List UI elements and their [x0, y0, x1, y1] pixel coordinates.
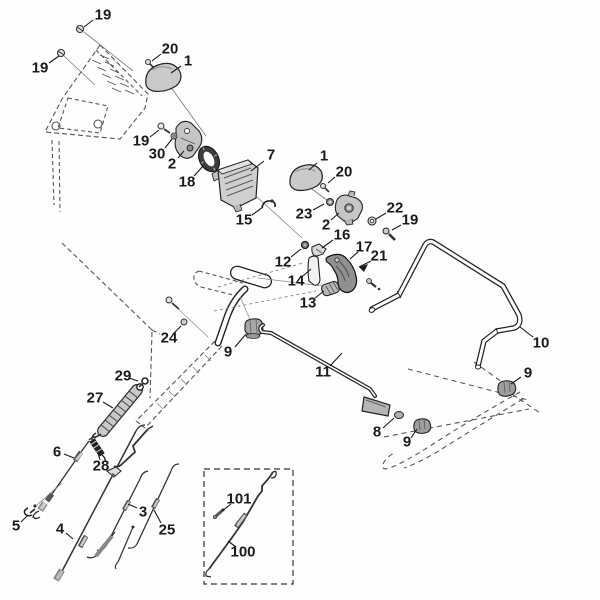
part-label-13: 13: [300, 295, 317, 312]
leader-line-19: [84, 20, 93, 27]
leader-line-27: [103, 402, 113, 408]
parts-diagram: 1920119193021871512023222191612172114131…: [0, 0, 600, 600]
part-label-1: 1: [184, 53, 192, 70]
phantom-lower-handle: [383, 362, 540, 469]
leader-line-12: [291, 249, 301, 257]
part-label-9: 9: [403, 434, 411, 451]
part-label-29: 29: [115, 368, 132, 385]
part-label-9: 9: [224, 344, 232, 361]
part-label-5: 5: [12, 518, 20, 535]
part-label-11: 11: [315, 364, 331, 381]
bushing-8: [395, 412, 404, 419]
leader-line-3: [128, 504, 137, 508]
leader-line-23: [313, 204, 324, 210]
screw-20-right: [321, 184, 330, 193]
leader-line-16: [322, 240, 333, 248]
part-label-20: 20: [162, 41, 179, 58]
part-label-3: 3: [139, 504, 147, 521]
part-label-15: 15: [236, 212, 253, 229]
part-label-9: 9: [524, 365, 532, 382]
cable-extra-right: [115, 526, 134, 570]
part-label-4: 4: [56, 521, 65, 538]
clevis-16: [312, 244, 326, 256]
part-label-8: 8: [373, 424, 381, 441]
part-label-28: 28: [93, 458, 110, 475]
part-label-23: 23: [296, 206, 313, 223]
nut-30: [171, 133, 177, 139]
part-label-19: 19: [402, 212, 419, 229]
part-label-10: 10: [533, 335, 550, 352]
part-labels: 1920119193021871512023222191612172114131…: [12, 7, 550, 561]
leader-line-11: [330, 353, 342, 366]
part-label-18: 18: [179, 174, 196, 191]
knob-13: [321, 281, 341, 297]
clip-15: [262, 199, 275, 207]
leader-line-9: [235, 334, 246, 347]
bracket-2-left: [175, 121, 202, 158]
screw-19-mid: [158, 123, 170, 133]
cap-9-bottom: [414, 419, 431, 434]
leader-line-20: [328, 177, 335, 183]
washer-22: [368, 217, 376, 225]
cable-6: [33, 437, 96, 518]
part-label-19: 19: [32, 60, 49, 77]
part-label-101: 101: [226, 491, 251, 508]
diagram-canvas: 1920119193021871512023222191612172114131…: [0, 0, 600, 600]
rod-100: [206, 471, 276, 577]
housing-7: [212, 160, 302, 238]
leader-line-4: [66, 533, 73, 539]
leader-line-22: [376, 213, 386, 219]
part-label-25: 25: [159, 522, 176, 539]
part-label-16: 16: [334, 227, 351, 244]
part-label-2: 2: [168, 156, 176, 173]
part-label-20: 20: [336, 164, 353, 181]
leader-line-9: [411, 429, 417, 438]
part-label-30: 30: [149, 146, 166, 163]
leader-line-15: [252, 207, 263, 215]
part-label-2: 2: [322, 217, 330, 234]
nut-12: [301, 241, 308, 248]
leader-line-18: [194, 166, 203, 176]
phantom-console-panel: [45, 45, 160, 398]
screw-21: [367, 279, 381, 291]
leader-line-19: [49, 56, 59, 63]
part-label-100: 100: [230, 544, 255, 561]
leader-line-9: [511, 377, 521, 384]
screw-19-top: [77, 26, 134, 72]
inset-box: [204, 469, 293, 584]
leader-line-19: [150, 130, 159, 137]
part-label-21: 21: [371, 248, 388, 265]
nut-23: [327, 199, 334, 206]
leader-line-10: [520, 327, 533, 337]
housing-2-right: [335, 191, 362, 225]
leader-line-6: [64, 454, 74, 458]
leader-line-20: [152, 54, 161, 61]
cable-extra-left: [87, 532, 115, 558]
leader-line-13: [315, 291, 324, 298]
handlebar-tube-10: [368, 242, 519, 369]
part-label-7: 7: [267, 147, 275, 164]
part-label-27: 27: [87, 390, 104, 407]
leader-line-8: [383, 418, 394, 428]
part-label-19: 19: [133, 133, 150, 150]
leader-line-5: [21, 515, 28, 522]
part-label-14: 14: [288, 273, 305, 290]
part-label-1: 1: [320, 148, 328, 165]
part-label-12: 12: [275, 254, 292, 271]
part-label-24: 24: [161, 330, 178, 347]
part-label-19: 19: [95, 7, 112, 24]
cap-1-left: [146, 63, 206, 136]
leader-line-30: [165, 139, 172, 148]
leader-line-19: [392, 225, 401, 230]
part-label-6: 6: [53, 444, 61, 461]
